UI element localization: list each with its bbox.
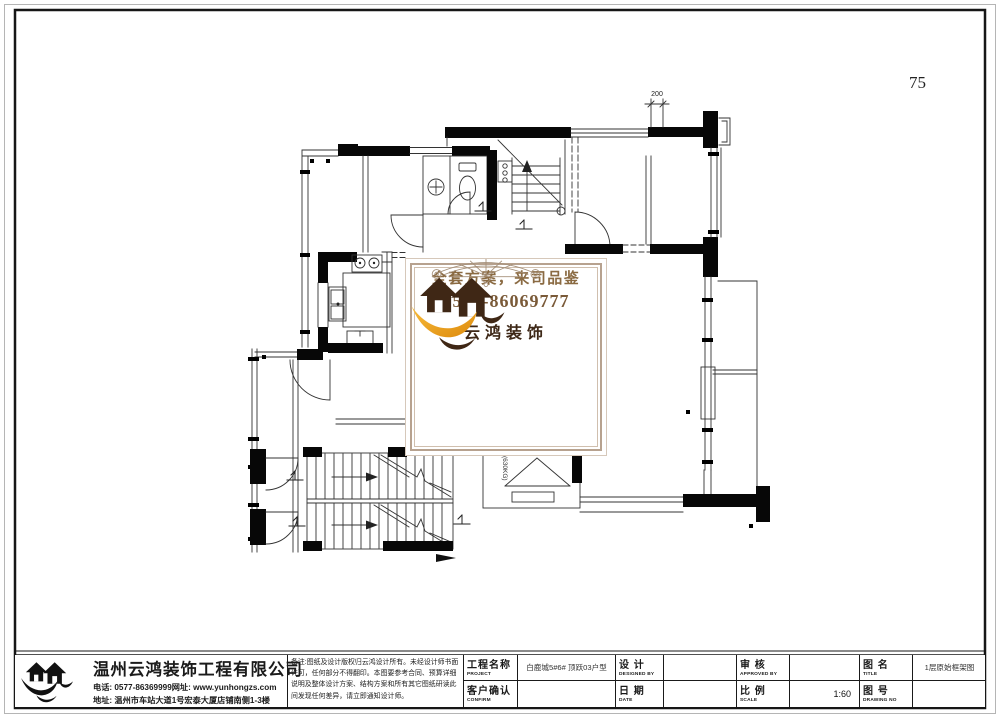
page-number: 75 bbox=[909, 73, 926, 92]
company-logo-black-icon bbox=[15, 655, 79, 703]
field-scale-label: 比 例 SCALE bbox=[736, 681, 789, 707]
field-scale-value: 1:60 bbox=[789, 681, 859, 707]
kitchen bbox=[318, 252, 392, 353]
balcony bbox=[683, 277, 770, 528]
top-walls bbox=[445, 111, 730, 148]
field-date-value bbox=[663, 681, 736, 707]
hall-door bbox=[391, 215, 423, 247]
watermark-box: 全套方案，来司品鉴 0577-86069777 云鸿装饰 bbox=[405, 258, 607, 456]
top-right-room bbox=[565, 137, 721, 277]
room-door bbox=[290, 360, 330, 400]
watermark-border: 全套方案，来司品鉴 0577-86069777 云鸿装饰 bbox=[410, 263, 602, 451]
field-title-value: 1层原始框架图 bbox=[912, 655, 986, 681]
dimension-200: 200 bbox=[645, 91, 669, 127]
field-drawingno-label: 图 号 DRAWING NO bbox=[859, 681, 912, 707]
bathroom-door bbox=[448, 192, 470, 214]
washbasin-icon bbox=[428, 179, 444, 195]
company-name: 温州云鸿装饰工程有限公司 bbox=[93, 656, 291, 680]
title-table: 工程名称 PROJECT 白鹿城5#6# 顶跃03户型 设 计 DESIGNED… bbox=[463, 655, 986, 707]
stair-hall-wall bbox=[487, 150, 512, 220]
company-phone: 电话: 0577-86369999网址: www.yunhongzs.com bbox=[93, 681, 291, 693]
field-approve-label: 审 核 APPROVED BY bbox=[736, 655, 789, 681]
drawing-sheet: 75 200 bbox=[0, 0, 1000, 719]
company-address: 地址: 温州市车站大道1号宏泰大厦店铺南侧1-3楼 bbox=[93, 694, 291, 706]
elevator: (630KG) bbox=[483, 452, 582, 508]
divider bbox=[287, 655, 288, 707]
field-project-label: 工程名称 PROJECT bbox=[464, 655, 517, 681]
kitchen-sink-icon bbox=[329, 287, 346, 321]
field-project-value: 白鹿城5#6# 顶跃03户型 bbox=[517, 655, 615, 681]
field-confirm-value bbox=[517, 681, 615, 707]
svg-text:200: 200 bbox=[651, 91, 663, 98]
svg-text:(630KG): (630KG) bbox=[501, 456, 508, 481]
stairs-main bbox=[303, 447, 456, 562]
field-approve-value bbox=[789, 655, 859, 681]
field-title-label: 图 名 TITLE bbox=[859, 655, 912, 681]
field-confirm-label: 客户确认 CONFIRM bbox=[464, 681, 517, 707]
copyright-notes: 备注:图纸及设计版权归云鸿设计所有。未经设计师书面许可，任何部分不得翻印。本图要… bbox=[291, 657, 459, 702]
bathroom bbox=[423, 156, 487, 252]
field-design-value bbox=[663, 655, 736, 681]
toilet-icon bbox=[459, 163, 476, 200]
flourish-ornament-icon bbox=[406, 259, 566, 289]
stairs-upper bbox=[498, 140, 565, 215]
field-design-label: 设 计 DESIGNED BY bbox=[615, 655, 663, 681]
corridor bbox=[580, 497, 683, 512]
title-block: 温州云鸿装饰工程有限公司 电话: 0577-86369999网址: www.yu… bbox=[15, 655, 985, 707]
field-date-label: 日 期 DATE bbox=[615, 681, 663, 707]
company-info: 温州云鸿装饰工程有限公司 电话: 0577-86369999网址: www.yu… bbox=[93, 656, 291, 706]
field-drawingno-value bbox=[912, 681, 986, 707]
